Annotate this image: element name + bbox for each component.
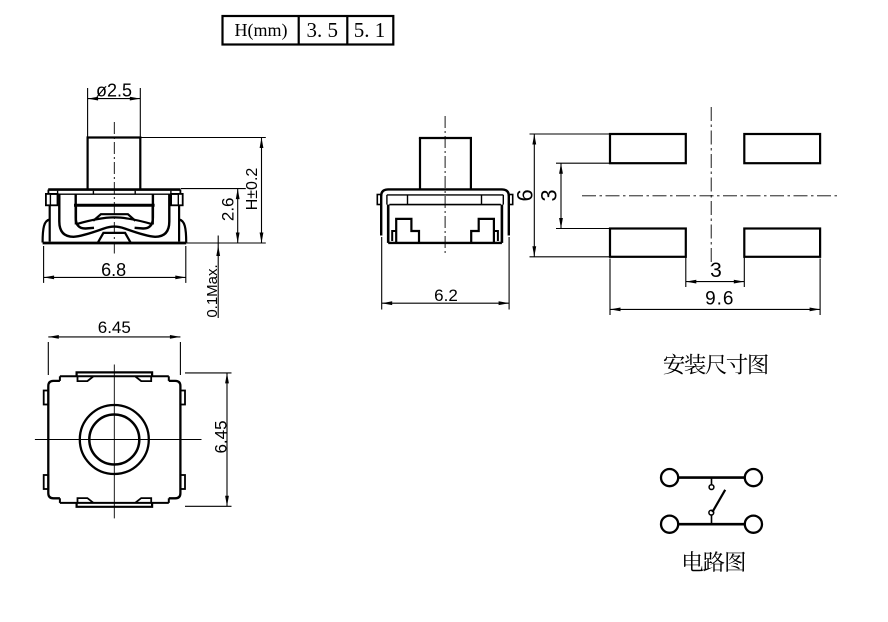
svg-text:0.1Max.: 0.1Max. bbox=[204, 264, 221, 317]
svg-text:6.8: 6.8 bbox=[101, 260, 126, 280]
svg-text:6.2: 6.2 bbox=[434, 286, 458, 305]
svg-text:9.6: 9.6 bbox=[705, 288, 734, 309]
svg-text:6.45: 6.45 bbox=[98, 318, 131, 337]
svg-text:2.6: 2.6 bbox=[218, 197, 237, 221]
svg-text:6.45: 6.45 bbox=[211, 420, 230, 453]
svg-text:ø2.5: ø2.5 bbox=[96, 81, 132, 101]
svg-text:5. 1: 5. 1 bbox=[354, 18, 386, 42]
svg-text:6: 6 bbox=[513, 189, 538, 201]
svg-text:3. 5: 3. 5 bbox=[307, 18, 339, 42]
svg-text:3: 3 bbox=[537, 189, 562, 201]
svg-text:3: 3 bbox=[710, 259, 722, 282]
svg-text:H±0.2: H±0.2 bbox=[244, 168, 261, 211]
svg-text:H(mm): H(mm) bbox=[235, 20, 288, 41]
